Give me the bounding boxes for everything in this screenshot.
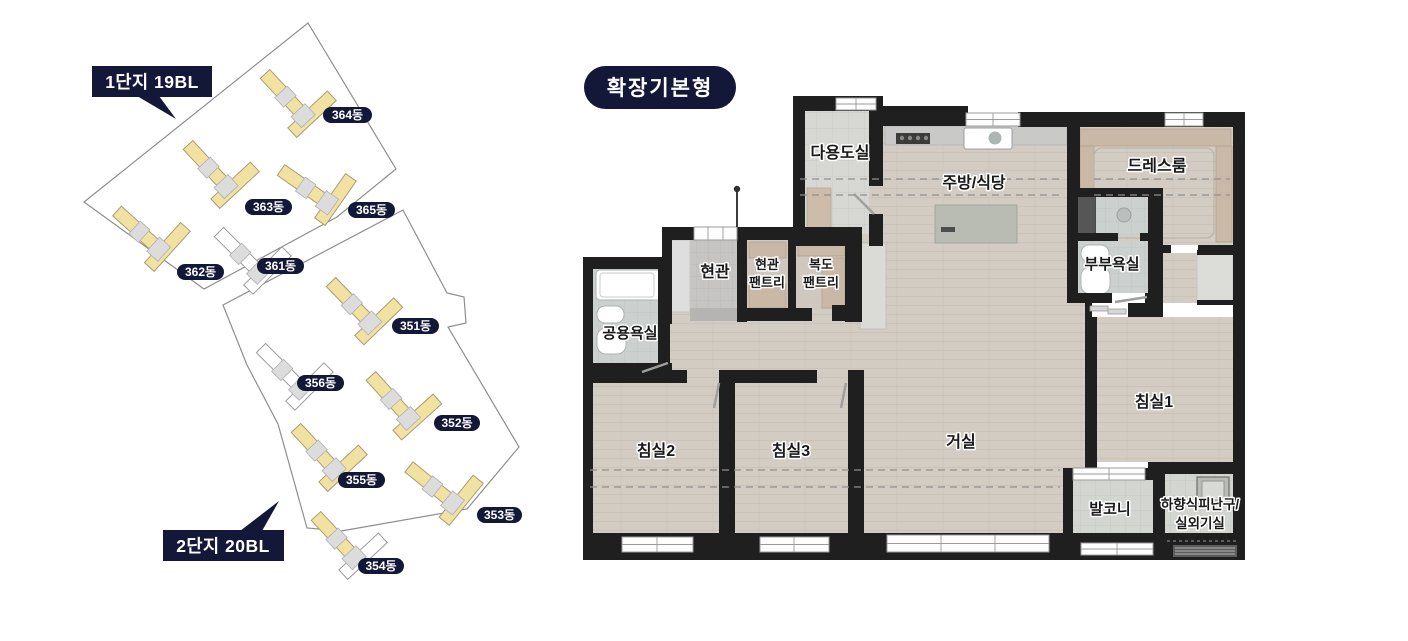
- plan-type-badge-text: 확장기본형: [607, 76, 714, 100]
- building-pill-365: 365동: [348, 202, 395, 218]
- dressroom-window: [1165, 113, 1203, 126]
- building-pill-361: 361동: [257, 258, 304, 274]
- label-bedroom3: 침실3: [772, 441, 810, 460]
- shower-drain: [1117, 208, 1131, 222]
- entry-step: [690, 308, 737, 321]
- site-and-floorplan-canvas: 1단지 19BL 2단지 20BL 364동 363동 365동 362동 36…: [0, 0, 1408, 641]
- bedroom2-window: [622, 537, 693, 552]
- building-pill-label: 361동: [265, 259, 296, 273]
- living-window: [887, 535, 1049, 552]
- building-pill-label: 352동: [441, 416, 472, 430]
- complex2-label-text: 2단지 20BL: [176, 536, 270, 556]
- label-kitchen: 주방/식당: [942, 174, 1006, 192]
- building-pill-351: 351동: [392, 318, 439, 334]
- living-balcony-window: [1073, 468, 1145, 480]
- wall-niche: [1197, 253, 1233, 301]
- building-pill-label: 365동: [356, 203, 387, 217]
- building-pill-364: 364동: [323, 107, 372, 123]
- building-pill-label: 364동: [332, 108, 363, 122]
- complex1-label: 1단지 19BL: [92, 66, 212, 119]
- kitchen-island: [935, 205, 1017, 243]
- building-pill-label: 356동: [305, 376, 336, 390]
- floor-plan: 다용도실 주방/식당 드레스룸 현관 현관 팬트리 복도 팬트리 부부욕실 공용…: [583, 66, 1245, 560]
- building-pill-362: 362동: [177, 264, 224, 280]
- master-bathroom: [1070, 196, 1148, 294]
- building-pill-356: 356동: [297, 375, 344, 391]
- label-bedroom2: 침실2: [637, 441, 675, 460]
- label-entrance-pantry-1: 현관: [755, 257, 779, 272]
- utility-room: [805, 111, 869, 234]
- complex1-label-text: 1단지 19BL: [105, 72, 199, 92]
- label-common-bath: 공용욕실: [602, 325, 657, 342]
- building-pill-label: 354동: [365, 559, 396, 573]
- building-pill-label: 353동: [484, 508, 515, 522]
- label-master-bath: 부부욕실: [1084, 256, 1139, 273]
- building-pill-354: 354동: [358, 558, 404, 574]
- building-pill-352: 352동: [434, 415, 480, 431]
- label-living: 거실: [946, 433, 975, 451]
- complex2-pointer: [240, 501, 279, 531]
- sink: [597, 306, 624, 323]
- label-utility: 다용도실: [811, 144, 870, 162]
- label-corridor-pantry-1: 복도: [809, 257, 833, 272]
- hall-cabinet: [860, 243, 886, 329]
- building-pill-label: 363동: [253, 200, 284, 214]
- building-pill-355: 355동: [338, 472, 385, 488]
- building-pill-label: 355동: [346, 473, 377, 487]
- label-corridor-pantry-2: 팬트리: [803, 275, 839, 290]
- complex2-label: 2단지 20BL: [163, 501, 284, 561]
- building-pill-353: 353동: [477, 507, 522, 523]
- bedroom3-window: [760, 537, 829, 552]
- page: 1단지 19BL 2단지 20BL 364동 363동 365동 362동 36…: [0, 0, 1408, 641]
- entry-door: [694, 186, 740, 240]
- label-entrance: 현관: [700, 262, 730, 281]
- shoe-closet: [670, 240, 690, 312]
- utility-window: [836, 98, 876, 110]
- label-entrance-pantry-2: 팬트리: [749, 275, 785, 290]
- balcony-window: [1081, 543, 1153, 555]
- kitchen-window: [966, 113, 1020, 126]
- site-plan: 1단지 19BL 2단지 20BL 364동 363동 365동 362동 36…: [84, 23, 522, 579]
- building-pill-363: 363동: [245, 199, 292, 215]
- label-escape-1: 하향식피난구/: [1161, 496, 1240, 512]
- building-pill-label: 351동: [400, 319, 431, 333]
- label-dressroom: 드레스룸: [1128, 157, 1187, 175]
- label-escape-2: 실외기실: [1175, 515, 1225, 531]
- building-pill-label: 362동: [185, 265, 216, 279]
- label-balcony: 발코니: [1089, 501, 1130, 518]
- complex1-pointer: [137, 96, 176, 119]
- label-bedroom1: 침실1: [1135, 392, 1173, 411]
- plan-type-badge: 확장기본형: [584, 66, 736, 109]
- kitchen-sink: [964, 128, 1012, 149]
